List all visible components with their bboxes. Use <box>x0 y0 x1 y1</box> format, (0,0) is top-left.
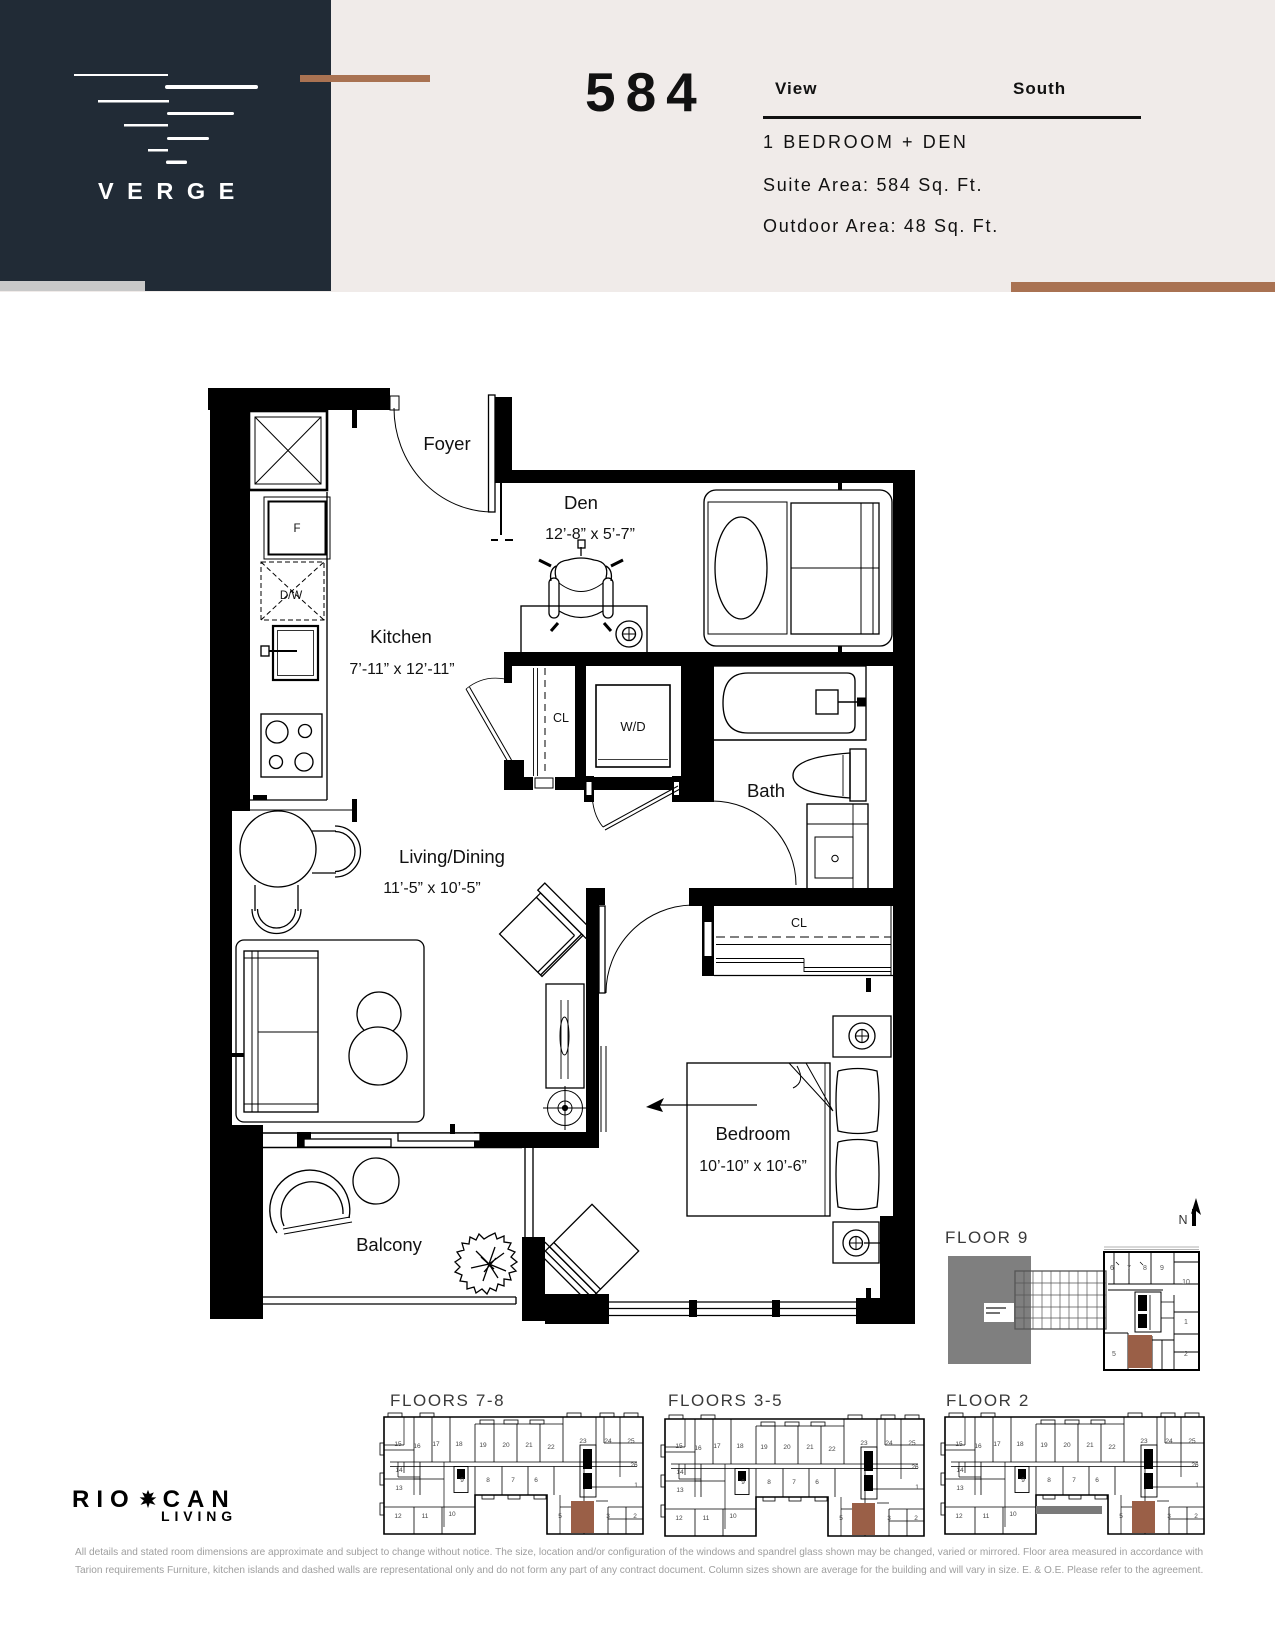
svg-text:7’-11” x 12’-11”: 7’-11” x 12’-11” <box>349 661 454 678</box>
svg-text:Kitchen: Kitchen <box>370 626 432 647</box>
svg-text:5: 5 <box>1112 1351 1116 1358</box>
svg-text:Balcony: Balcony <box>356 1234 423 1255</box>
svg-text:9: 9 <box>1160 1265 1164 1272</box>
svg-text:CL: CL <box>553 711 569 725</box>
svg-text:Bath: Bath <box>747 780 785 801</box>
svg-text:Foyer: Foyer <box>423 433 470 454</box>
svg-text:D/W: D/W <box>280 590 303 602</box>
svg-text:7: 7 <box>1127 1265 1131 1272</box>
svg-text:10’-10” x 10’-6”: 10’-10” x 10’-6” <box>699 1158 807 1175</box>
svg-text:N: N <box>1178 1213 1187 1227</box>
svg-text:Bedroom: Bedroom <box>715 1123 790 1144</box>
svg-text:CL: CL <box>791 916 807 930</box>
svg-text:10: 10 <box>1182 1279 1190 1286</box>
svg-text:8: 8 <box>1143 1265 1147 1272</box>
svg-text:Living/Dining: Living/Dining <box>399 846 505 867</box>
svg-text:11’-5” x 10’-5”: 11’-5” x 10’-5” <box>383 880 481 897</box>
svg-text:12’-8” x 5’-7”: 12’-8” x 5’-7” <box>545 526 635 543</box>
svg-text:1: 1 <box>1184 1319 1188 1326</box>
svg-text:F: F <box>293 523 300 535</box>
svg-text:Den: Den <box>564 492 598 513</box>
svg-text:W/D: W/D <box>620 719 645 734</box>
svg-text:2: 2 <box>1184 1351 1188 1358</box>
svg-text:6: 6 <box>1110 1265 1114 1272</box>
